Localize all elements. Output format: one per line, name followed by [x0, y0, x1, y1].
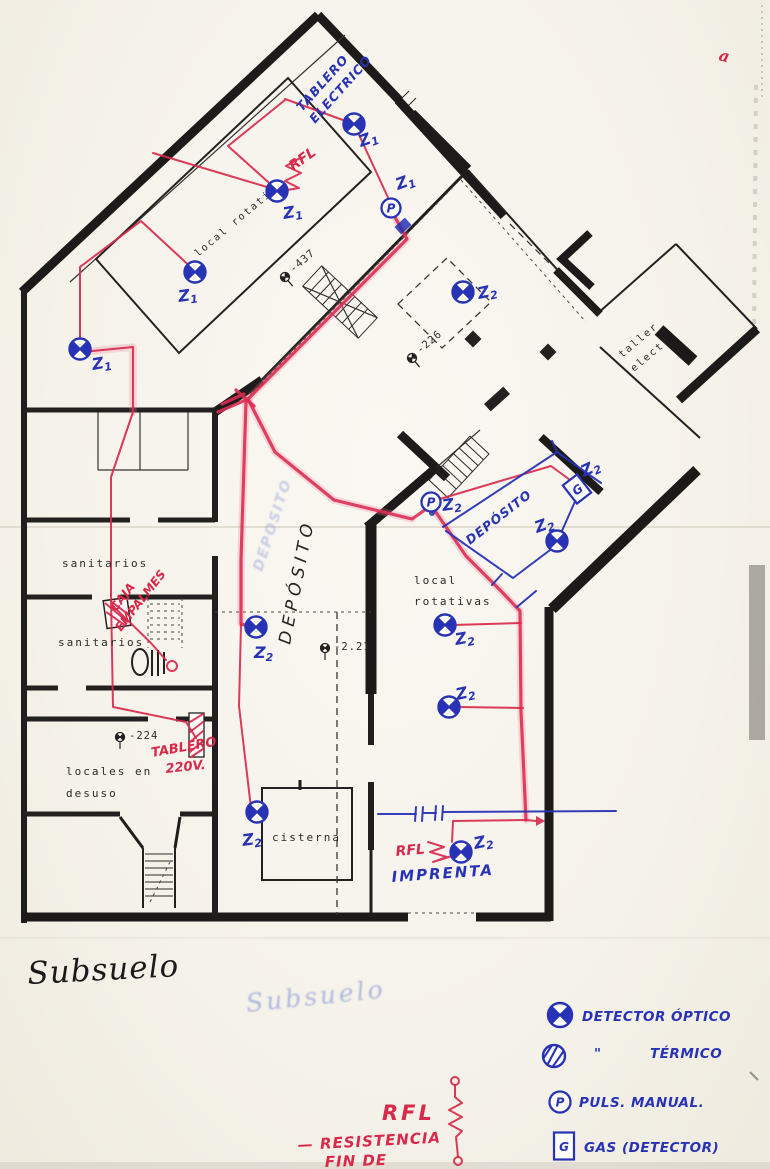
- red-note: 220V.: [165, 758, 206, 777]
- legend-symbol-gas: G: [554, 1133, 574, 1160]
- detector-optical: [70, 339, 91, 360]
- svg-text:P: P: [556, 1096, 565, 1110]
- note-deposito-blue: DEPÓSITO: [463, 487, 535, 548]
- walls: [22, 15, 757, 923]
- detector-optical: [247, 802, 268, 823]
- scanned-floor-plan: TABLERO ELECTRICO IMPRENTA DEPÓSITO DEPÓ…: [0, 0, 770, 1169]
- zone-label: Z1: [89, 352, 113, 376]
- legend-label: TÉRMICO: [650, 1045, 722, 1062]
- level-marker: -2.21: [321, 641, 371, 660]
- legend-label: GAS (DETECTOR): [584, 1140, 719, 1156]
- zone-label: Z2: [471, 830, 496, 855]
- detector-pulsador: P: [382, 199, 401, 218]
- room-label: locales en: [66, 765, 152, 778]
- detector-optical: [453, 282, 474, 303]
- legend-symbol-thermal: [543, 1045, 565, 1067]
- staircase-small: [148, 598, 182, 648]
- room-label: rotativas: [414, 595, 492, 608]
- red-note: RFL: [395, 841, 426, 859]
- room-label: cisterna: [272, 831, 341, 844]
- svg-text:-2.21: -2.21: [334, 641, 371, 653]
- corner-mark: a: [717, 45, 732, 66]
- plan-canvas: TABLERO ELECTRICO IMPRENTA DEPÓSITO DEPÓ…: [0, 0, 770, 1169]
- svg-text:-224: -224: [129, 730, 158, 742]
- rfl-legend-line2: FIN DE: [325, 1151, 388, 1169]
- svg-text:G: G: [559, 1140, 569, 1154]
- svg-text:-437: -437: [287, 247, 317, 275]
- red-note: RFL: [286, 144, 319, 174]
- page-title: Subsuelo: [27, 948, 181, 992]
- svg-text:P: P: [387, 202, 396, 216]
- zone-label: Z2: [453, 681, 478, 706]
- room-label: local: [414, 574, 457, 587]
- zone-label: Z2: [240, 828, 263, 852]
- svg-text:-226: -226: [414, 328, 444, 356]
- zone-label: Z2: [475, 280, 500, 305]
- detector-optical: [267, 181, 288, 202]
- zone-label: Z1: [280, 201, 304, 225]
- rfl-legend-label: RFL: [382, 1101, 435, 1125]
- room-label: sanitarios: [62, 557, 148, 570]
- detector-optical: [246, 617, 267, 638]
- rfl-resistor-symbol: [449, 1077, 462, 1165]
- page-title-ghost: Subsuelo: [245, 974, 387, 1017]
- note-deposito-black: DEPÓSITO: [273, 517, 319, 646]
- zone-label: Z1: [176, 284, 199, 308]
- svg-text:P: P: [427, 496, 436, 510]
- red-note: TABLERO: [150, 735, 218, 761]
- legend-ditto: ": [594, 1046, 602, 1062]
- zone-label: Z2: [253, 643, 274, 664]
- detector-optical: [451, 842, 472, 863]
- detector-optical: [435, 615, 456, 636]
- room-label: desuso: [66, 787, 118, 800]
- zone-label: Z2: [440, 493, 463, 517]
- legend-symbol-pulsador: P: [550, 1092, 571, 1113]
- level-marker: -226: [404, 328, 449, 370]
- room-label: sanitarios: [58, 636, 144, 649]
- legend-label: DETECTOR ÓPTICO: [582, 1007, 731, 1025]
- dynamic-symbols: local rotativasanitariossanitarioslocale…: [58, 114, 731, 1160]
- note-deposito-ghost: DEPOSITO: [251, 477, 296, 573]
- note-imprenta: IMPRENTA: [391, 861, 495, 886]
- legend-label: PULS. MANUAL.: [579, 1095, 704, 1111]
- rfl-legend-line1: — RESISTENCIA: [297, 1129, 441, 1154]
- staircase-bottom: [143, 848, 175, 908]
- detector-pulsador: P: [422, 493, 441, 512]
- zone-label: Z2: [452, 627, 476, 651]
- legend-symbol-optical: [548, 1003, 572, 1027]
- zone-label: Z1: [392, 169, 418, 196]
- detector-optical: [185, 262, 206, 283]
